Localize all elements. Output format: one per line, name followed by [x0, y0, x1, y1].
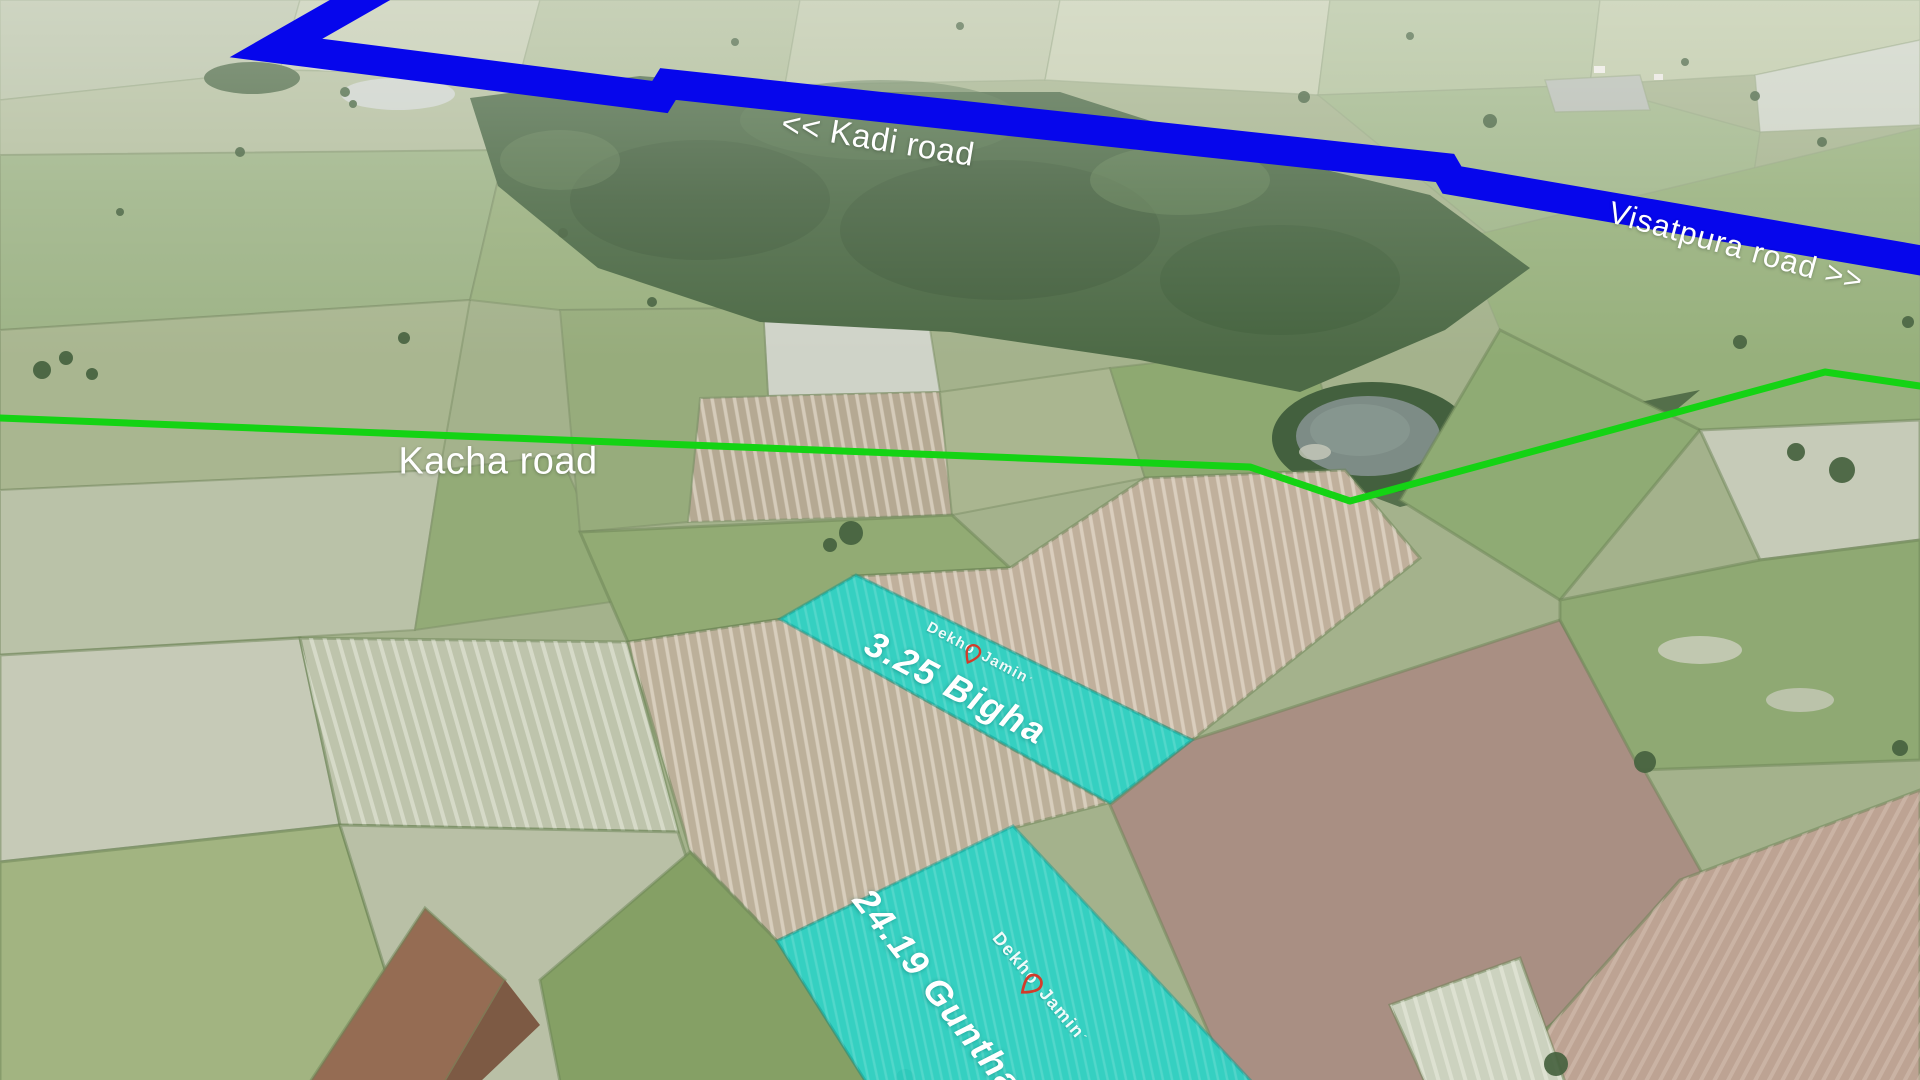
aerial-land-listing-photo: << Kadi road Visatpura road >> Kacha roa… — [0, 0, 1920, 1080]
kacha-road-label: Kacha road — [398, 441, 597, 484]
